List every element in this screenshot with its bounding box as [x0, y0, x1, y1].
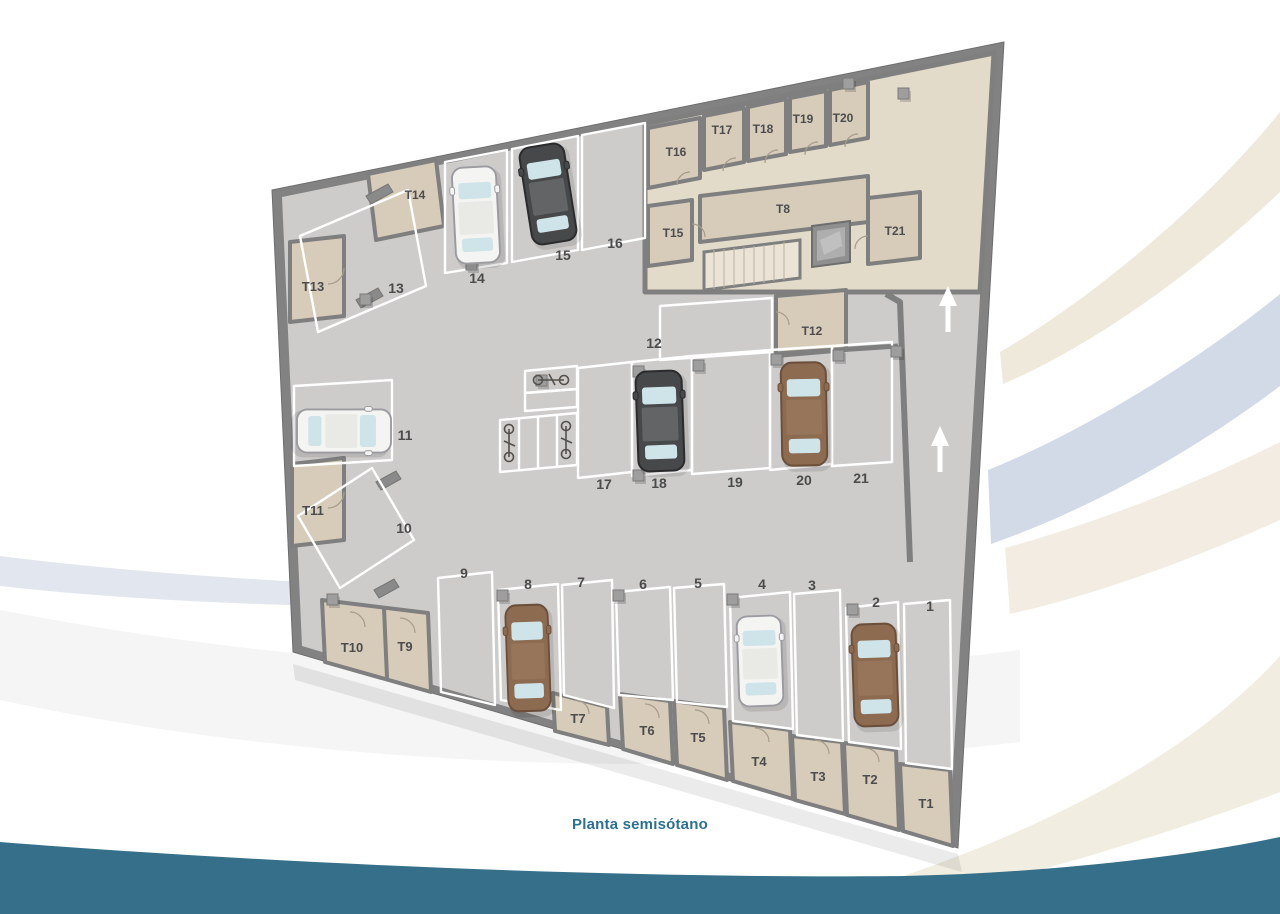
- trastero-label-T12: T12: [802, 324, 823, 338]
- elevator: [812, 221, 850, 267]
- trastero-label-T19: T19: [793, 112, 814, 126]
- trastero-label-T4: T4: [751, 754, 767, 769]
- trastero-label-T13: T13: [302, 279, 324, 294]
- parking-label-15: 15: [555, 247, 571, 263]
- room-T17: [704, 108, 744, 170]
- trastero-label-T3: T3: [810, 769, 825, 784]
- parking-label-9: 9: [460, 565, 468, 581]
- trastero-label-T1: T1: [918, 796, 933, 811]
- car-space-20: [778, 362, 833, 472]
- car-space-8: [502, 604, 556, 718]
- parking-label-11: 11: [398, 427, 413, 443]
- trastero-label-T14: T14: [405, 188, 426, 202]
- trastero-label-T5: T5: [690, 730, 705, 745]
- parking-label-6: 6: [639, 576, 647, 592]
- trastero-label-T11: T11: [302, 503, 324, 518]
- parking-label-7: 7: [577, 574, 585, 590]
- parking-label-1: 1: [926, 598, 934, 614]
- car-space-11: [291, 407, 391, 458]
- parking-label-13: 13: [388, 280, 404, 296]
- parking-label-19: 19: [727, 474, 743, 490]
- trastero-label-T2: T2: [862, 772, 877, 787]
- parking-label-16: 16: [607, 235, 623, 251]
- trastero-label-T8: T8: [776, 202, 790, 216]
- trastero-label-T16: T16: [666, 145, 687, 159]
- parking-label-14: 14: [469, 270, 485, 286]
- car-space-2: [848, 623, 904, 733]
- scene: 1 2 3 4 5 6 7 8 9 10 11 12 13 14 15 16 1…: [0, 0, 1280, 914]
- parking-label-4: 4: [758, 576, 766, 592]
- parking-label-3: 3: [808, 577, 816, 593]
- plan-title: Planta semisótano: [0, 816, 1280, 833]
- parking-label-18: 18: [651, 475, 667, 491]
- trastero-label-T17: T17: [712, 123, 733, 137]
- parking-label-17: 17: [596, 476, 612, 492]
- trastero-label-T9: T9: [397, 639, 412, 654]
- car-space-14: [449, 166, 506, 270]
- trastero-label-T21: T21: [885, 224, 906, 238]
- car-space-18: [632, 370, 690, 478]
- trastero-label-T7: T7: [570, 711, 585, 726]
- car-space-4: [733, 615, 788, 712]
- parking-label-5: 5: [694, 575, 702, 591]
- trastero-label-T20: T20: [833, 111, 854, 125]
- parking-label-20: 20: [796, 472, 812, 488]
- parking-label-10: 10: [396, 520, 412, 536]
- parking-label-2: 2: [872, 594, 880, 610]
- trastero-label-T15: T15: [663, 226, 684, 240]
- trastero-label-T10: T10: [341, 640, 363, 655]
- trastero-label-T6: T6: [639, 723, 654, 738]
- parking-label-12: 12: [646, 335, 662, 351]
- trastero-label-T18: T18: [753, 122, 774, 136]
- parking-label-21: 21: [853, 470, 869, 486]
- parking-label-8: 8: [524, 576, 532, 592]
